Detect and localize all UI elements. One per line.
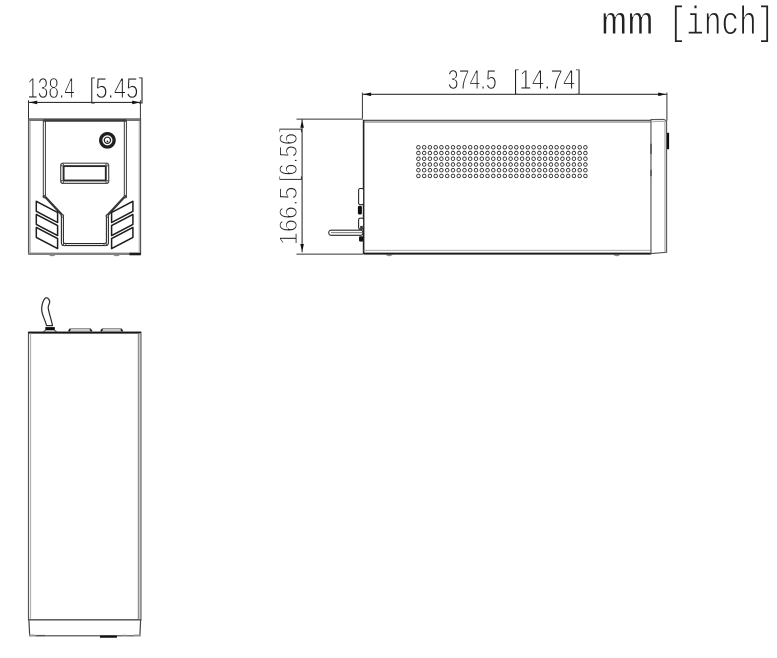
svg-text:[5.45]: [5.45] [89,74,144,105]
svg-text:mm: mm [601,1,654,47]
svg-text:374.5: 374.5 [448,64,497,95]
svg-text:166.5: 166.5 [275,186,303,245]
svg-text:[14.74]: [14.74] [513,65,582,96]
svg-text:[6.56]: [6.56] [275,127,303,182]
svg-text:[inch]: [inch] [669,1,775,47]
svg-text:138.4: 138.4 [27,74,75,106]
